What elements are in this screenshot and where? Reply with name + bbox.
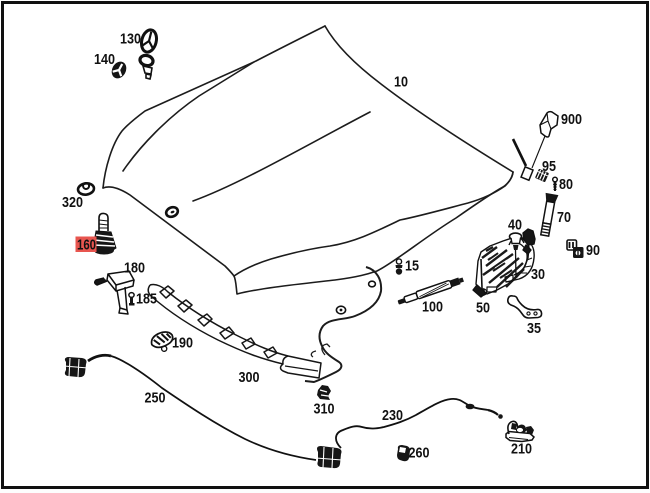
svg-text:310: 310 [314, 401, 335, 418]
svg-text:90: 90 [586, 242, 600, 259]
svg-text:210: 210 [511, 441, 532, 458]
svg-text:95: 95 [542, 158, 556, 175]
svg-text:250: 250 [145, 390, 166, 407]
svg-text:70: 70 [557, 209, 571, 226]
svg-text:300: 300 [239, 369, 260, 386]
svg-text:40: 40 [508, 217, 522, 234]
svg-text:185: 185 [136, 291, 157, 308]
svg-text:190: 190 [172, 335, 193, 352]
svg-text:320: 320 [62, 194, 83, 211]
svg-text:130: 130 [120, 31, 141, 48]
svg-text:10: 10 [394, 74, 408, 91]
svg-text:900: 900 [561, 111, 582, 128]
svg-text:260: 260 [409, 445, 430, 462]
svg-text:100: 100 [422, 299, 443, 316]
svg-text:160: 160 [77, 237, 96, 254]
svg-text:35: 35 [527, 320, 541, 337]
svg-text:230: 230 [382, 407, 403, 424]
svg-text:180: 180 [124, 260, 145, 277]
svg-text:30: 30 [531, 266, 545, 283]
svg-text:50: 50 [476, 300, 490, 317]
svg-text:80: 80 [559, 176, 573, 193]
svg-text:140: 140 [94, 51, 115, 68]
svg-text:15: 15 [405, 258, 419, 275]
